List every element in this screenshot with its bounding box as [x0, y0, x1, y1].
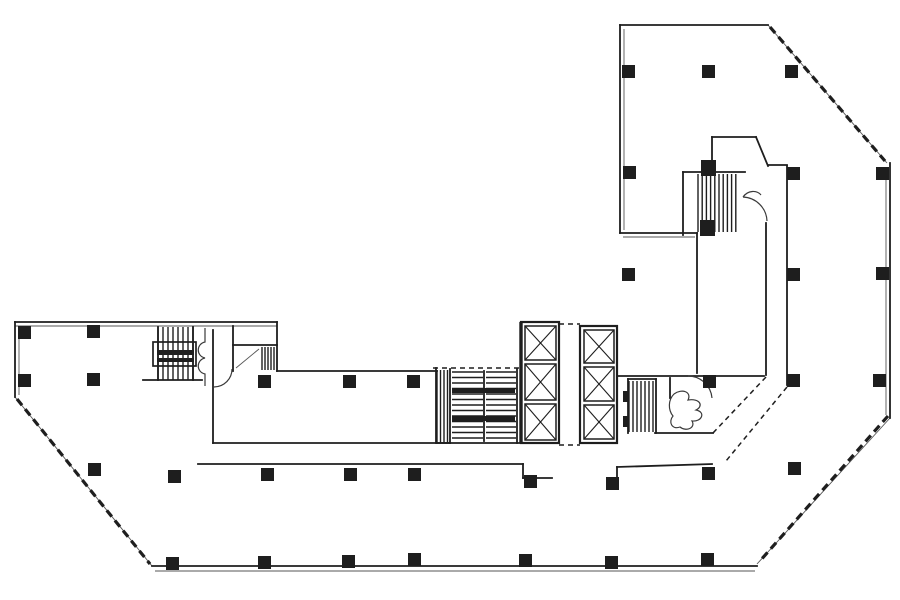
- dashed-wall-layer: [17, 27, 888, 564]
- column-marker: [702, 65, 715, 78]
- floorplan-page: [0, 0, 900, 600]
- column-marker: [785, 65, 798, 78]
- column-marker: [701, 553, 714, 566]
- stair-hatch-layer: [157, 174, 736, 443]
- column-marker: [87, 325, 100, 338]
- thin-wall-layer: [15, 25, 890, 571]
- column-marker: [407, 375, 420, 388]
- column-marker: [703, 375, 716, 388]
- column-marker: [787, 167, 800, 180]
- column-marker: [258, 556, 271, 569]
- column-marker: [622, 65, 635, 78]
- column-marker: [88, 463, 101, 476]
- column-marker: [342, 555, 355, 568]
- column-marker: [408, 468, 421, 481]
- wall-layer: [15, 25, 890, 566]
- column-marker: [343, 375, 356, 388]
- column-marker: [787, 374, 800, 387]
- column-marker: [702, 467, 715, 480]
- column-marker: [258, 375, 271, 388]
- column-marker: [519, 554, 532, 567]
- column-marker: [166, 557, 179, 570]
- column-marker: [18, 374, 31, 387]
- column-marker: [701, 160, 716, 176]
- column-marker: [876, 167, 889, 180]
- column-marker: [623, 166, 636, 179]
- column-marker: [18, 326, 31, 339]
- column-marker: [787, 268, 800, 281]
- floorplan-drawing: [0, 0, 900, 600]
- elevator-layer: [525, 326, 614, 440]
- column-marker: [873, 374, 886, 387]
- column-marker: [788, 462, 801, 475]
- column-marker: [344, 468, 357, 481]
- column-marker: [408, 553, 421, 566]
- column-marker: [622, 268, 635, 281]
- column-marker: [700, 220, 715, 236]
- column-marker: [605, 556, 618, 569]
- column-marker: [876, 267, 889, 280]
- column-marker: [261, 468, 274, 481]
- column-marker: [606, 477, 619, 490]
- column-marker: [524, 475, 537, 488]
- column-marker: [87, 373, 100, 386]
- column-marker: [168, 470, 181, 483]
